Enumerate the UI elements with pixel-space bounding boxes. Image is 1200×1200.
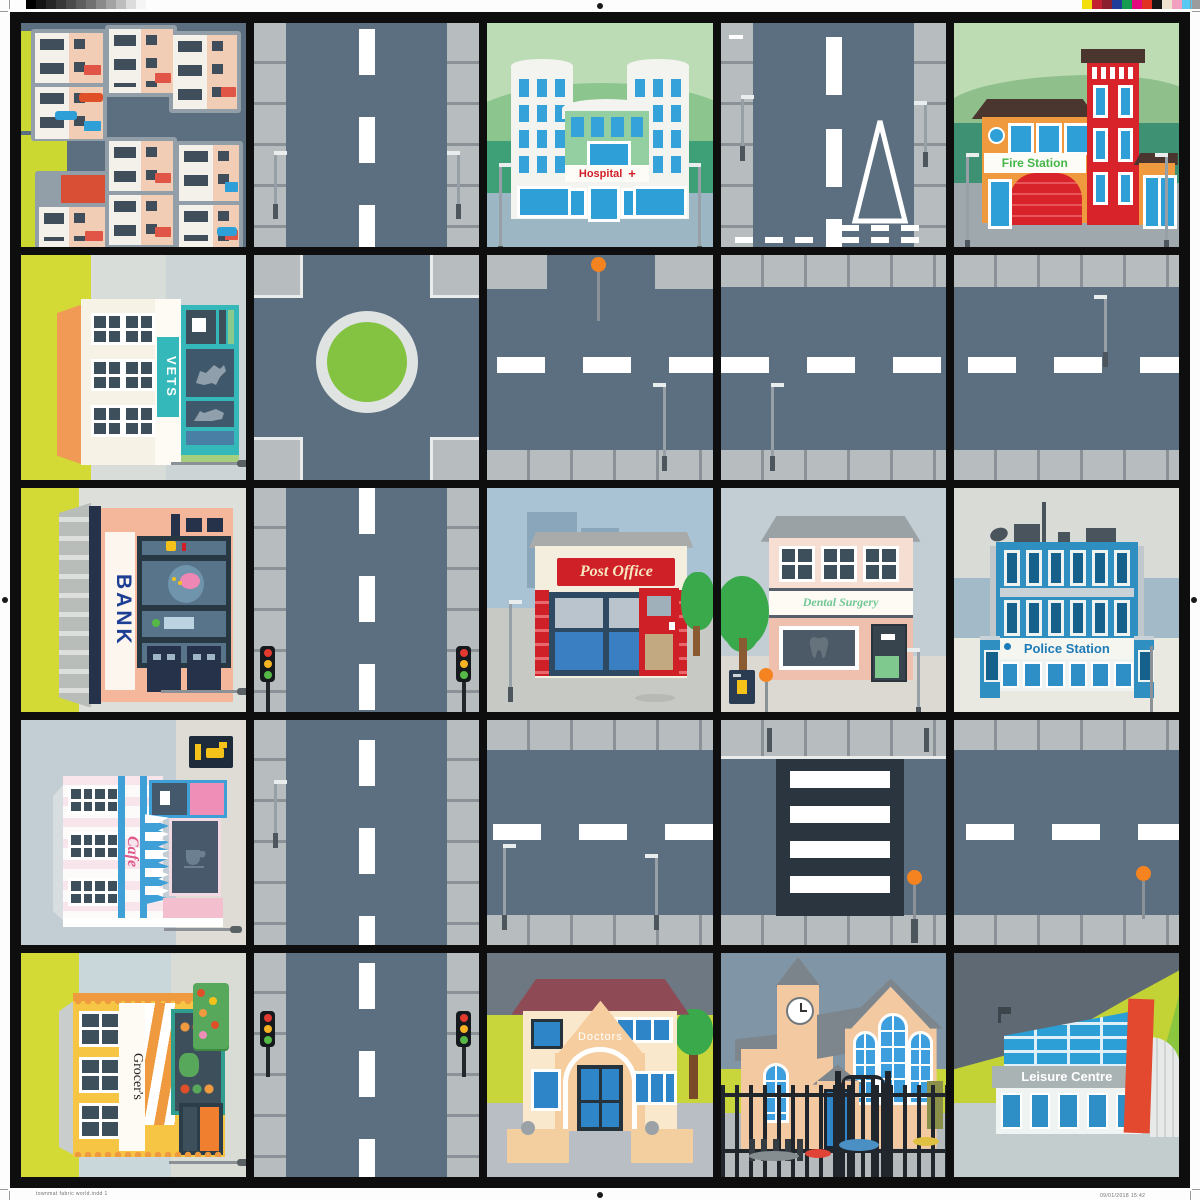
window-pane (537, 79, 547, 97)
tile-roundabout (254, 255, 479, 479)
tile-road-give-way (721, 23, 946, 247)
menu-card (160, 791, 170, 805)
window-pane (631, 117, 644, 137)
windows-row (1004, 600, 1130, 636)
street-lamp (274, 780, 277, 834)
beacon-base (911, 919, 918, 943)
police-sign: Police Station (998, 638, 1136, 659)
window (92, 878, 120, 906)
wing-window (984, 650, 1000, 682)
roof (972, 99, 1098, 119)
street-lamp (457, 151, 460, 205)
belisha-beacon (907, 870, 922, 885)
calibration-swatch (1122, 0, 1132, 9)
pillar (535, 590, 549, 676)
traffic-light (260, 646, 275, 682)
give-way-line (841, 237, 929, 243)
window (123, 313, 155, 345)
red-fin (1123, 998, 1154, 1133)
calibration-swatch (76, 0, 86, 9)
doctors-sign-label: Doctors (555, 1031, 645, 1043)
window-pane (1093, 85, 1108, 118)
mullion (142, 555, 226, 561)
top-window (171, 514, 180, 536)
door-window (647, 596, 671, 616)
bank-sign: BANK (105, 532, 135, 690)
leisure-sign-label: Leisure Centre (1021, 1069, 1112, 1084)
pavement (447, 720, 479, 944)
post (767, 728, 772, 752)
door-pane (1046, 662, 1065, 688)
door-section (639, 588, 679, 676)
road-centre-line (493, 824, 712, 840)
calibration-swatch (136, 0, 146, 9)
house (109, 141, 141, 191)
crop-mark (1190, 1191, 1191, 1200)
wall-ball (645, 1121, 659, 1135)
grocers-sign: Grocer's (119, 1003, 145, 1151)
glass-roof (1004, 1011, 1136, 1071)
pavement (954, 450, 1179, 480)
calibration-swatch (1132, 0, 1142, 9)
atm-sign (164, 617, 194, 629)
window-pane (555, 156, 565, 174)
red-cross-icon: + (628, 166, 636, 181)
storefront-base (186, 431, 234, 445)
bin-dog-icon (737, 680, 747, 694)
window (779, 546, 815, 582)
window (123, 359, 155, 391)
ground-floor-front (998, 659, 1136, 691)
scallop-trim (73, 1149, 225, 1157)
fence-rail (721, 1093, 946, 1097)
door-pane (1001, 1093, 1022, 1129)
flower (199, 1009, 207, 1017)
tile-police-station: Police Station (954, 488, 1179, 712)
window-pane (635, 79, 645, 97)
window-pane (653, 105, 663, 123)
digger-arm (219, 742, 227, 748)
tile-road-traffic-lights (254, 488, 479, 712)
calibration-swatch (1192, 0, 1200, 9)
house-wing (69, 33, 103, 83)
satellite-dish-icon (988, 525, 1009, 543)
street-lamp (663, 383, 666, 457)
registration-mark (1191, 597, 1197, 603)
traffic-light-pole (462, 680, 466, 712)
parcel (645, 634, 673, 670)
window (821, 546, 857, 582)
cafe-window (169, 818, 221, 896)
street-lamp (924, 101, 927, 153)
pavement (721, 720, 946, 758)
antenna-mast (1042, 502, 1046, 544)
door-pane (1114, 662, 1133, 688)
crop-mark (9, 1191, 10, 1200)
amber-light (264, 660, 272, 668)
street-lamp-flat (161, 690, 241, 693)
floor-band (1000, 588, 1134, 597)
traffic-light-pole (462, 1045, 466, 1077)
pavement-corner (487, 255, 547, 289)
tile-leisure-centre: Leisure Centre (954, 953, 1179, 1177)
window-pane (1114, 600, 1130, 636)
centre-line-dash (826, 129, 842, 187)
window (79, 1057, 121, 1093)
litter-bin (729, 670, 755, 704)
crop-mark (9, 0, 10, 9)
calibration-swatch (106, 0, 116, 9)
door (84, 65, 101, 75)
house (179, 145, 213, 201)
zebra-crossing (776, 759, 904, 916)
calibration-swatch (66, 0, 76, 9)
door-pane (1023, 662, 1042, 688)
beacon-pole (1142, 881, 1145, 919)
street-lamp (966, 153, 969, 241)
road-centre-line (359, 740, 375, 944)
piggy-bank-icon (180, 573, 200, 589)
wall-ball (521, 1121, 535, 1135)
gate (841, 1075, 885, 1177)
shop-window (779, 626, 859, 670)
lower-band (163, 898, 223, 918)
gate-post (885, 1071, 891, 1177)
traffic-light (456, 646, 471, 682)
window-pane (1093, 172, 1108, 205)
window-pane (519, 130, 529, 148)
side-wing (980, 636, 1000, 698)
roof-box (1086, 528, 1116, 542)
street-lamp (771, 383, 774, 457)
house-wing (69, 207, 105, 247)
calibration-swatch (126, 0, 136, 9)
window-pane (537, 130, 547, 148)
calibration-swatch (1142, 0, 1152, 9)
window-pane (591, 117, 604, 137)
registration-mark (597, 1192, 603, 1198)
traffic-light (260, 1011, 275, 1047)
tree (681, 572, 712, 630)
pavement (487, 450, 712, 480)
pavement (721, 255, 946, 287)
leisure-sign: Leisure Centre (992, 1066, 1142, 1088)
window (123, 405, 155, 437)
street-lamp-flat (169, 1161, 241, 1164)
street-lamp (503, 844, 506, 916)
traffic-light-pole (266, 1045, 270, 1077)
dot (152, 619, 160, 627)
crop-mark (0, 1189, 8, 1190)
calibration-swatch (1112, 0, 1122, 9)
vets-storefront (181, 305, 239, 455)
town-playmat: Hospital + (10, 12, 1190, 1188)
flower (199, 1031, 207, 1039)
entrance-door (577, 1065, 623, 1131)
green-light (460, 1036, 468, 1044)
coin (178, 581, 182, 585)
door (155, 73, 171, 83)
calibration-swatch (46, 0, 56, 9)
road-centre-line (721, 357, 946, 373)
calibration-swatch (26, 0, 36, 9)
tree-trunk (693, 626, 700, 656)
window (91, 359, 123, 391)
window-pane (519, 79, 529, 97)
calibration-swatch (86, 0, 96, 9)
amber-light (460, 1025, 468, 1033)
crop-mark (1192, 1189, 1200, 1190)
vets-sign: VETS (157, 337, 179, 417)
red-car (79, 93, 103, 102)
pavement (254, 23, 286, 247)
base-window (517, 186, 571, 218)
tree (675, 1009, 712, 1055)
spire (775, 957, 821, 987)
street-lamp (655, 854, 658, 916)
window-pane (555, 79, 565, 97)
mullion (142, 605, 226, 611)
upper-pink-panel (187, 780, 227, 818)
door-glass (183, 1107, 197, 1151)
door-pane (1069, 662, 1088, 688)
striped-awning (145, 814, 169, 904)
yellow-splat (913, 1137, 939, 1146)
street-lamp (509, 600, 512, 688)
street-lamp (1165, 153, 1168, 241)
flower-display (193, 983, 229, 1049)
tile-road-vertical (254, 23, 479, 247)
sign-bar (195, 744, 201, 760)
corner-pavement (254, 437, 303, 480)
road-centre-line (966, 824, 1179, 840)
hospital-sign: Hospital + (565, 165, 649, 182)
window-pane (1118, 128, 1133, 161)
bank-sign-label: BANK (112, 574, 135, 647)
amber-light (264, 1025, 272, 1033)
grocers-sign-label: Grocer's (130, 1053, 145, 1100)
window-pane (1048, 550, 1064, 586)
tile-doctors: Doctors (487, 953, 712, 1177)
door (85, 231, 103, 241)
red-roof (61, 175, 105, 203)
house (173, 35, 207, 109)
red-splat (805, 1149, 831, 1158)
gate-post (835, 1071, 841, 1177)
pavement (721, 23, 753, 247)
flower (211, 1021, 219, 1029)
door-pane (1001, 662, 1020, 688)
centre-line-dash (826, 219, 842, 247)
lower-pane (555, 632, 603, 670)
window-pane (1070, 550, 1086, 586)
window (1008, 123, 1034, 155)
street-lamp-flat (164, 928, 234, 931)
logo-square (192, 318, 206, 332)
tile-residential (21, 23, 246, 247)
flag (1001, 1007, 1011, 1014)
cat-icon (186, 401, 234, 427)
give-way-triangle (849, 115, 911, 227)
traffic-light (456, 1011, 471, 1047)
fire-station-sign: Fire Station (984, 153, 1086, 173)
door-pane (1030, 1093, 1051, 1129)
house-wing (141, 29, 173, 93)
calibration-swatch (36, 0, 46, 9)
garden-wall (631, 1129, 693, 1163)
dental-sign-label: Dental Surgery (803, 595, 879, 610)
tile-cafe: Cafe (21, 720, 246, 944)
proof-timestamp: 09/01/2018 15:42 (1100, 1193, 1145, 1199)
calibration-swatch (1172, 0, 1182, 9)
window (79, 1103, 121, 1139)
tile-zebra-crossing (721, 720, 946, 944)
door (871, 624, 907, 682)
cafe-sign: Cafe (124, 816, 141, 886)
calibration-swatch (1152, 0, 1162, 9)
tower-windows (1093, 85, 1133, 205)
window-pane (1026, 550, 1042, 586)
house (109, 29, 141, 93)
bin-label (733, 674, 741, 677)
tile-hospital: Hospital + (487, 23, 712, 247)
pavement (447, 23, 479, 247)
house-wing (207, 35, 237, 109)
window-pane (519, 105, 529, 123)
entrance-doors (996, 1088, 1142, 1134)
cafe-sign-label: Cafe (124, 836, 141, 867)
sign-dot (166, 541, 176, 551)
calibration-swatch (1162, 0, 1172, 9)
tile-bank: BANK (21, 488, 246, 712)
blue-car (217, 227, 237, 236)
beacon-pole (597, 269, 600, 321)
pavement (914, 23, 946, 247)
window-pane (1118, 85, 1133, 118)
pavement (721, 450, 946, 480)
street-lamp (499, 163, 502, 247)
tile-dental-surgery: Dental Surgery (721, 488, 946, 712)
registration-mark (597, 3, 603, 9)
pane (193, 654, 201, 660)
hospital-sign-label: Hospital (579, 168, 622, 180)
window-pane (1026, 600, 1042, 636)
tower-windows (519, 79, 565, 173)
road-centre-line (968, 357, 1179, 373)
window-pane (571, 117, 584, 137)
storefront-panel (186, 310, 216, 344)
police-sign-label: Police Station (1024, 641, 1110, 656)
pavement (254, 953, 286, 1177)
window (91, 313, 123, 345)
house-wing (213, 205, 239, 247)
window-strip (633, 1071, 677, 1105)
entrance-door (588, 186, 620, 222)
window (863, 546, 899, 582)
street-lamp (741, 95, 744, 147)
post (924, 728, 929, 752)
flower (197, 989, 205, 997)
coffee-cup-icon (182, 846, 208, 868)
window-pane (537, 105, 547, 123)
window-pane (1004, 550, 1020, 586)
house-wing (141, 195, 173, 245)
door-rail (581, 1100, 619, 1103)
door (155, 227, 171, 237)
green-light (264, 671, 272, 679)
beacon-pole (765, 682, 768, 712)
tile-road-horizontal (954, 720, 1179, 944)
post-office-sign: Post Office (557, 558, 675, 586)
crop-mark (1192, 11, 1200, 12)
window-pane (653, 79, 663, 97)
house-wing (141, 141, 173, 191)
house (39, 207, 69, 247)
roadworks-sign (189, 736, 233, 768)
red-light (460, 649, 468, 657)
upper-sign-window (149, 780, 191, 818)
print-proof-page: townmat fabric world.indd 1 09/01/2018 1… (0, 0, 1200, 1200)
window-pane (671, 156, 681, 174)
pavement (954, 720, 1179, 750)
side-roof (59, 503, 91, 708)
lamp-pole (1150, 646, 1153, 712)
sign-tick (182, 543, 186, 551)
base-window (633, 186, 687, 218)
green-band (228, 310, 234, 344)
window-pane (1118, 172, 1133, 205)
curved-annex (1150, 1037, 1179, 1137)
vets-sign-label: VETS (164, 356, 179, 398)
centre-windows (571, 117, 643, 137)
letterbox (881, 634, 895, 640)
road-centre-line (359, 488, 375, 712)
pane (207, 654, 215, 660)
window-pane (1048, 600, 1064, 636)
lower-door (147, 646, 181, 692)
greens (179, 1053, 199, 1077)
window-pane (1070, 600, 1086, 636)
window-pane (1093, 128, 1108, 161)
calibration-swatch (96, 0, 106, 9)
roof-box (1014, 524, 1040, 542)
garden-wall (507, 1129, 569, 1163)
tile-church (721, 953, 946, 1177)
house (179, 205, 213, 247)
window-pane (611, 117, 624, 137)
window-pane (671, 130, 681, 148)
door (179, 1103, 223, 1155)
clock-face (786, 997, 814, 1025)
tile-road-horizontal (721, 255, 946, 479)
pane (153, 654, 161, 660)
beacon-pole (913, 885, 916, 919)
upper-pane (555, 598, 603, 628)
traffic-light-pole (266, 680, 270, 712)
post-office-sign-label: Post Office (580, 563, 653, 581)
pavement-corner (655, 255, 713, 289)
digger-icon (206, 748, 224, 758)
window (79, 1011, 121, 1047)
corner-pavement (430, 437, 479, 480)
road-centre-line (359, 963, 375, 1177)
green-light (264, 1036, 272, 1044)
dog-poster (186, 349, 234, 397)
top-window (186, 518, 202, 532)
round-window (988, 127, 1005, 144)
window (91, 405, 123, 437)
give-way-line (841, 225, 929, 231)
